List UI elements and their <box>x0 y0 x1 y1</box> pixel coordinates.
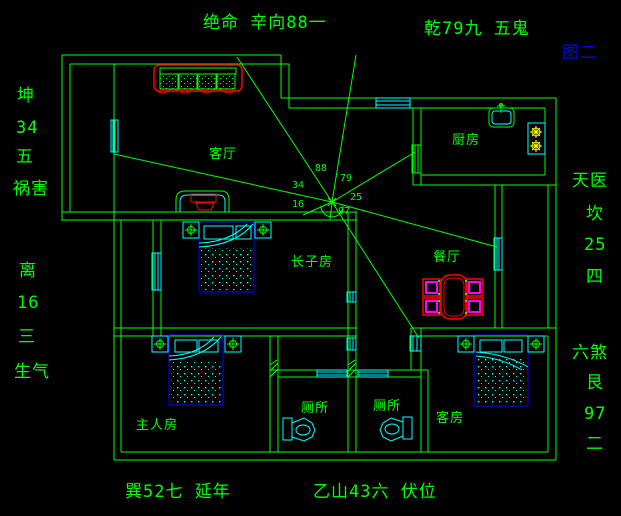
nightstand <box>458 336 474 352</box>
floorplan-drawing: 绝命 辛向88一 乾79九 五鬼 图二 坤 34 五 祸害 离 16 三 生气 … <box>0 0 621 516</box>
label-right-97: 97 <box>584 404 606 424</box>
toilet-fixture-left <box>283 418 315 441</box>
label-left-shengqi: 生气 <box>14 362 50 382</box>
room-label-dining: 餐厅 <box>433 249 461 265</box>
window-living-left <box>111 120 118 152</box>
label-left-san: 三 <box>18 327 36 347</box>
label-right-liusha: 六煞 <box>572 343 608 363</box>
label-top-left: 绝命 辛向88一 <box>203 13 327 33</box>
room-label-guest: 客房 <box>436 410 464 426</box>
label-right-gen: 艮 <box>586 373 604 393</box>
label-figure-number: 图二 <box>562 43 598 63</box>
label-left-16: 16 <box>17 293 39 313</box>
kitchen-stove <box>528 123 545 154</box>
window-toilet-right <box>358 370 388 377</box>
compass-number-25: 25 <box>350 192 362 203</box>
window-toilet-left <box>317 370 347 377</box>
bed-master <box>169 335 223 405</box>
kitchen-sink <box>489 103 514 127</box>
tv-cabinet <box>176 191 229 212</box>
compass-number-34: 34 <box>292 180 304 191</box>
nightstand <box>152 336 168 352</box>
room-label-eldest: 长子房 <box>291 254 333 270</box>
room-label-toilet-left: 厕所 <box>301 401 329 416</box>
nightstand <box>183 222 199 238</box>
label-left-wu: 五 <box>16 147 34 167</box>
room-label-living: 客厅 <box>209 146 237 162</box>
label-right-kan: 坎 <box>586 204 604 224</box>
dining-table <box>441 275 467 319</box>
label-left-kun: 坤 <box>17 86 35 106</box>
nightstand <box>225 336 241 352</box>
compass-number-97: 97 <box>338 206 350 217</box>
label-right-tianyi: 天医 <box>572 171 608 191</box>
nightstand <box>255 222 271 238</box>
label-top-right: 乾79九 五鬼 <box>424 19 530 39</box>
room-label-master: 主人房 <box>136 417 178 433</box>
window-guest-left <box>410 336 421 351</box>
compass-number-88: 88 <box>315 163 327 174</box>
dining-chairs <box>423 279 483 315</box>
sofa <box>154 65 242 93</box>
bed-eldest <box>199 222 254 292</box>
label-right-si: 四 <box>586 267 604 287</box>
label-right-er: 二 <box>586 434 604 454</box>
floorplan-viewport[interactable]: 绝命 辛向88一 乾79九 五鬼 图二 坤 34 五 祸害 离 16 三 生气 … <box>0 0 621 516</box>
label-bottom-left: 巽52七 延年 <box>125 482 231 502</box>
label-bottom-right: 乙山43六 伏位 <box>313 482 437 502</box>
compass-number-16: 16 <box>292 199 304 210</box>
label-left-li: 离 <box>19 261 37 281</box>
compass-number-79: 79 <box>340 173 352 184</box>
toilet-fixture-right <box>380 417 412 441</box>
room-label-toilet-right: 厕所 <box>373 399 401 414</box>
bed-guest <box>474 335 528 406</box>
window-top <box>376 98 410 108</box>
nightstand <box>528 336 544 352</box>
label-left-34: 34 <box>16 118 38 138</box>
room-label-kitchen: 厨房 <box>452 132 480 148</box>
label-left-huohai: 祸害 <box>13 179 49 199</box>
wall-hatch-marks <box>270 360 356 377</box>
label-right-25: 25 <box>584 235 606 255</box>
